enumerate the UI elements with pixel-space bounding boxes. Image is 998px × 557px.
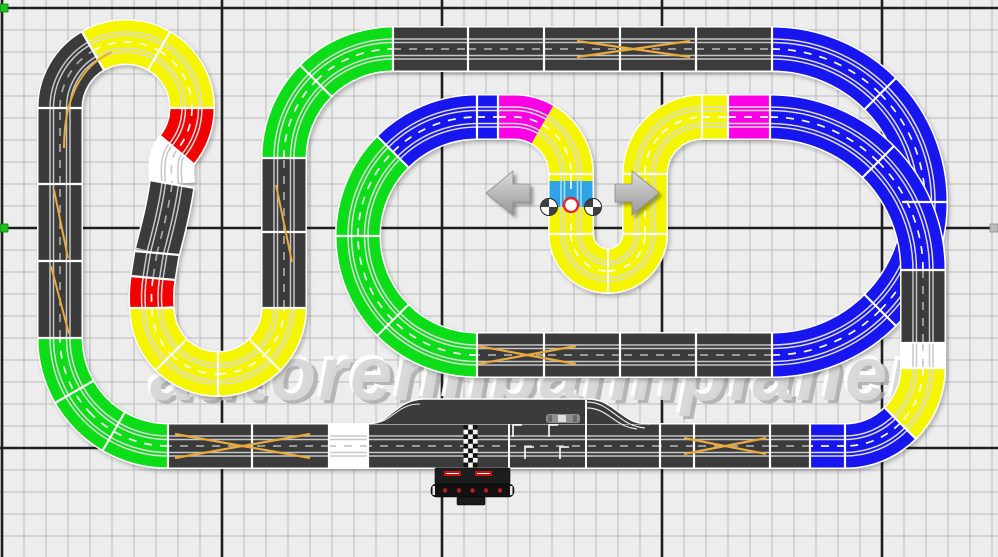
control-unit[interactable] <box>431 468 514 505</box>
canvas-handle-right[interactable] <box>990 224 998 232</box>
canvas-handle-top-left[interactable] <box>0 4 8 12</box>
track-planner-canvas[interactable]: autorennbahnplaner autorennbahnplaner au… <box>0 0 998 557</box>
left-arrow-button[interactable] <box>486 171 530 215</box>
selection-handle-right[interactable] <box>585 199 602 216</box>
selection-handle-left[interactable] <box>541 199 558 216</box>
left-arrow-icon[interactable] <box>486 171 530 215</box>
selection-center-handle[interactable] <box>564 198 578 212</box>
canvas-handle-left[interactable] <box>0 224 8 232</box>
planner-scene[interactable]: autorennbahnplaner autorennbahnplaner au… <box>0 0 998 557</box>
start-finish-line <box>464 425 478 467</box>
car-icon <box>546 414 580 423</box>
